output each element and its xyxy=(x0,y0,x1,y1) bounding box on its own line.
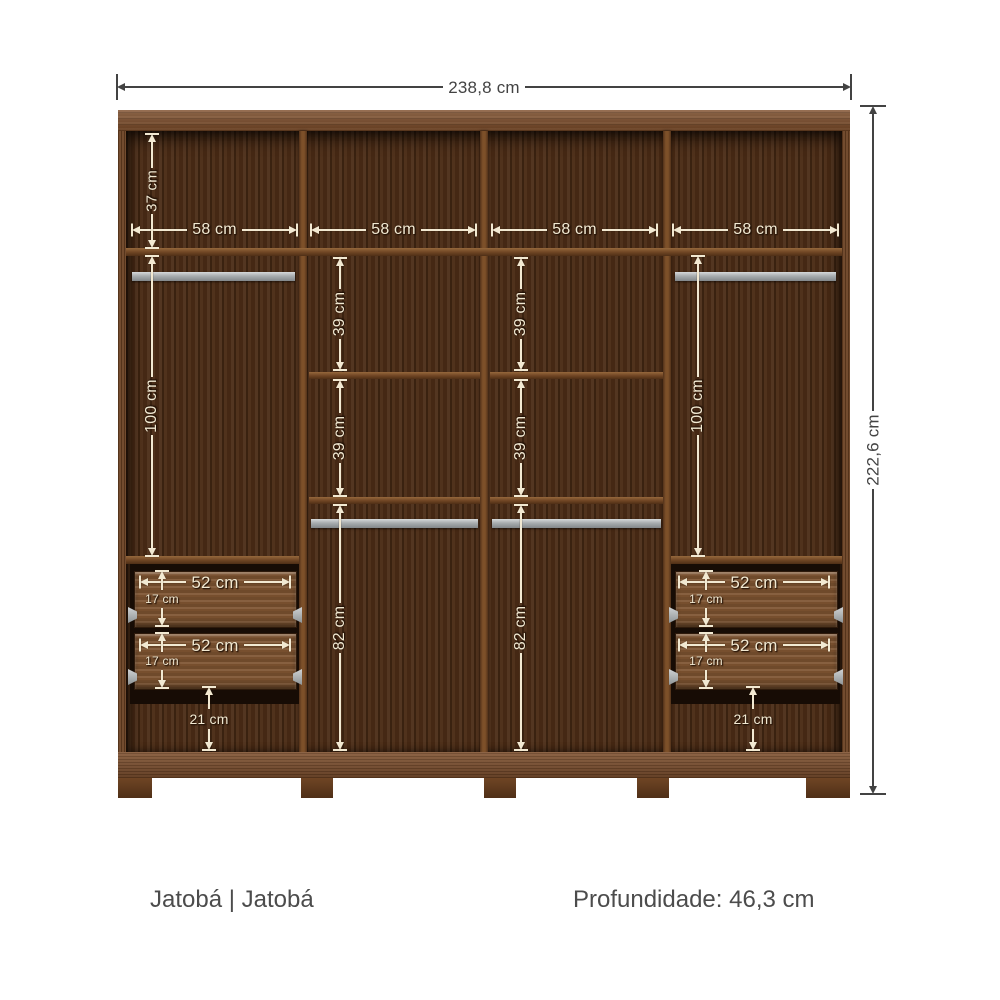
dim-label: 39 cm xyxy=(513,416,529,461)
dim-label: 52 cm xyxy=(186,574,243,591)
arrow-right-icon xyxy=(830,226,838,234)
arrow-down-icon xyxy=(517,742,525,750)
arrow-right-icon xyxy=(282,641,290,649)
dim-label: 82 cm xyxy=(513,605,529,650)
arrow-left-icon xyxy=(311,226,319,234)
dim-label: 100 cm xyxy=(144,379,160,433)
vertical-divider xyxy=(480,131,488,752)
arrow-right-icon xyxy=(649,226,657,234)
arrow-right-icon xyxy=(821,641,829,649)
middle-shelf xyxy=(309,372,480,379)
dim-below-drawers: 21 cm xyxy=(745,687,761,750)
arrow-left-icon xyxy=(679,578,687,586)
dim-drawer-height: 17 cm xyxy=(154,571,170,626)
dim-below-drawers: 21 cm xyxy=(201,687,217,750)
dim-lower-height-right: 82 cm xyxy=(513,505,529,750)
arrow-down-icon xyxy=(148,240,156,248)
dim-label: 52 cm xyxy=(186,637,243,654)
dim-overall-width: 238,8 cm xyxy=(117,79,851,95)
arrow-down-icon xyxy=(702,618,710,626)
arrow-right-icon xyxy=(821,578,829,586)
arrow-up-icon xyxy=(517,380,525,388)
arrow-up-icon xyxy=(517,505,525,513)
foot xyxy=(637,778,669,798)
dim-label: 39 cm xyxy=(332,416,348,461)
dim-label: 58 cm xyxy=(547,222,602,238)
dim-shelf-gap-right-upper: 39 cm xyxy=(513,258,529,370)
foot xyxy=(484,778,516,798)
dim-label: 21 cm xyxy=(189,709,228,729)
vertical-divider xyxy=(299,131,307,752)
base-plinth xyxy=(118,752,850,778)
arrow-left-icon xyxy=(679,641,687,649)
dim-label: 17 cm xyxy=(145,590,179,608)
arrow-down-icon xyxy=(336,362,344,370)
wardrobe-dimension-diagram: 238,8 cm 222,6 cm 58 cm 58 cm 58 cm 58 c… xyxy=(0,0,1000,1000)
dim-hanging-height-right: 100 cm xyxy=(690,256,706,556)
arrow-up-icon xyxy=(336,258,344,266)
foot xyxy=(118,778,152,798)
middle-shelf xyxy=(309,497,480,504)
dim-hanging-height-left: 100 cm xyxy=(144,256,160,556)
dim-drawer-height: 17 cm xyxy=(698,633,714,688)
arrow-down-icon xyxy=(336,488,344,496)
arrow-up-icon xyxy=(336,380,344,388)
arrow-down-icon xyxy=(158,680,166,688)
arrow-down-icon xyxy=(702,680,710,688)
arrow-up-icon xyxy=(148,134,156,142)
dim-label: 222,6 cm xyxy=(865,414,882,486)
arrow-down-icon xyxy=(158,618,166,626)
dim-lower-height-left: 82 cm xyxy=(332,505,348,750)
dim-section-width-4: 58 cm xyxy=(673,221,838,239)
arrow-up-icon xyxy=(749,687,757,695)
arrow-up-icon xyxy=(205,687,213,695)
vertical-divider xyxy=(663,131,671,752)
dim-shelf-gap-left-lower: 39 cm xyxy=(332,380,348,496)
arrow-left-icon xyxy=(673,226,681,234)
middle-shelf xyxy=(490,372,663,379)
dim-label: 17 cm xyxy=(689,652,723,670)
arrow-right-icon xyxy=(468,226,476,234)
dim-drawer-height: 17 cm xyxy=(154,633,170,688)
dim-label: 238,8 cm xyxy=(443,79,525,96)
dim-label: 52 cm xyxy=(725,574,782,591)
foot xyxy=(301,778,333,798)
dim-label: 37 cm xyxy=(145,170,160,212)
dim-label: 21 cm xyxy=(733,709,772,729)
dim-label: 82 cm xyxy=(332,605,348,650)
depth-label: Profundidade: 46,3 cm xyxy=(573,887,815,913)
dim-label: 58 cm xyxy=(187,222,242,238)
arrow-down-icon xyxy=(517,362,525,370)
dim-section-width-2: 58 cm xyxy=(311,221,476,239)
arrow-left-icon xyxy=(492,226,500,234)
dim-drawer-height: 17 cm xyxy=(698,571,714,626)
wardrobe xyxy=(118,110,850,797)
arrow-right-icon xyxy=(282,578,290,586)
dim-label: 39 cm xyxy=(332,292,348,337)
arrow-left-icon xyxy=(117,83,125,91)
arrow-up-icon xyxy=(336,505,344,513)
arrow-right-icon xyxy=(289,226,297,234)
arrow-up-icon xyxy=(148,256,156,264)
top-panel xyxy=(118,110,850,131)
arrow-left-icon xyxy=(140,578,148,586)
dim-label: 17 cm xyxy=(145,652,179,670)
arrow-down-icon xyxy=(148,548,156,556)
dim-top-shelf-height: 37 cm xyxy=(144,134,160,248)
top-shelf xyxy=(126,248,842,256)
drawer-top-shelf-right xyxy=(671,556,842,564)
foot xyxy=(806,778,850,798)
arrow-up-icon xyxy=(158,633,166,641)
arrow-up-icon xyxy=(694,256,702,264)
dim-shelf-gap-right-lower: 39 cm xyxy=(513,380,529,496)
middle-shelf xyxy=(490,497,663,504)
dim-label: 100 cm xyxy=(690,379,706,433)
drawer-top-shelf-left xyxy=(126,556,299,564)
dim-section-width-3: 58 cm xyxy=(492,221,657,239)
arrow-down-icon xyxy=(336,742,344,750)
arrow-up-icon xyxy=(158,571,166,579)
dim-label: 39 cm xyxy=(513,292,529,337)
dim-label: 52 cm xyxy=(725,637,782,654)
arrow-down-icon xyxy=(869,786,877,794)
arrow-down-icon xyxy=(205,742,213,750)
dim-label: 17 cm xyxy=(689,590,723,608)
arrow-up-icon xyxy=(517,258,525,266)
left-side-panel xyxy=(118,131,126,752)
arrow-up-icon xyxy=(869,106,877,114)
right-side-panel xyxy=(842,131,850,752)
arrow-up-icon xyxy=(702,633,710,641)
arrow-up-icon xyxy=(702,571,710,579)
arrow-down-icon xyxy=(749,742,757,750)
arrow-left-icon xyxy=(132,226,140,234)
dim-shelf-gap-left-upper: 39 cm xyxy=(332,258,348,370)
finish-label: Jatobá | Jatobá xyxy=(150,887,314,913)
arrow-right-icon xyxy=(843,83,851,91)
dim-overall-height: 222,6 cm xyxy=(865,106,881,794)
dim-label: 58 cm xyxy=(728,222,783,238)
dim-label: 58 cm xyxy=(366,222,421,238)
arrow-left-icon xyxy=(140,641,148,649)
arrow-down-icon xyxy=(694,548,702,556)
arrow-down-icon xyxy=(517,488,525,496)
